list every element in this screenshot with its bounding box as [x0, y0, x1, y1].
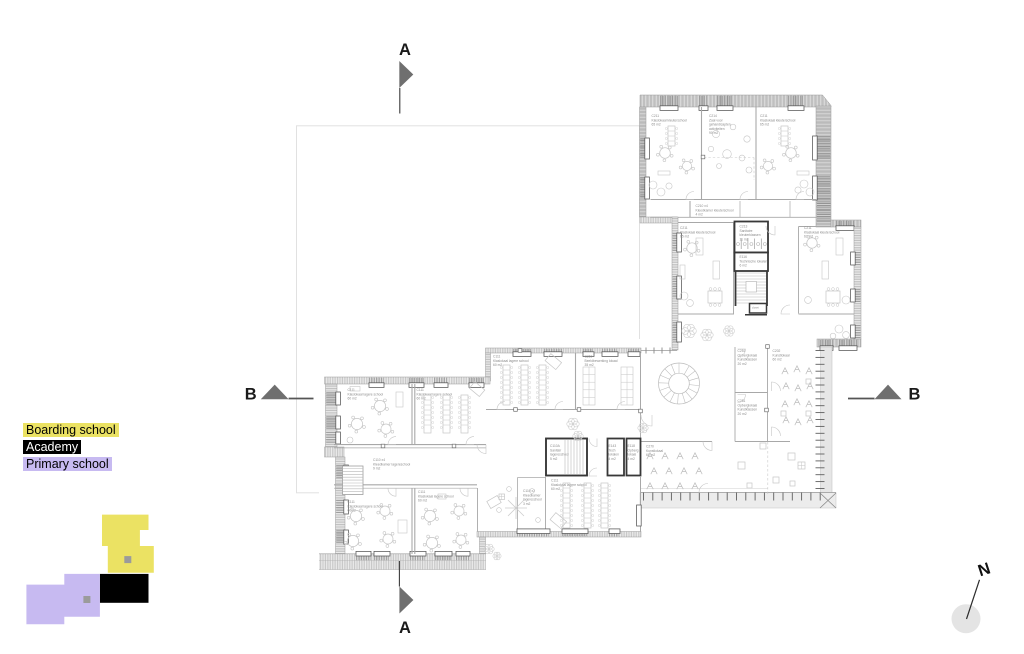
svg-text:A: A: [399, 41, 411, 59]
svg-text:closet: closet: [752, 306, 759, 310]
svg-text:B: B: [909, 386, 921, 404]
svg-text:B: B: [245, 385, 257, 403]
svg-text:A: A: [399, 619, 411, 637]
